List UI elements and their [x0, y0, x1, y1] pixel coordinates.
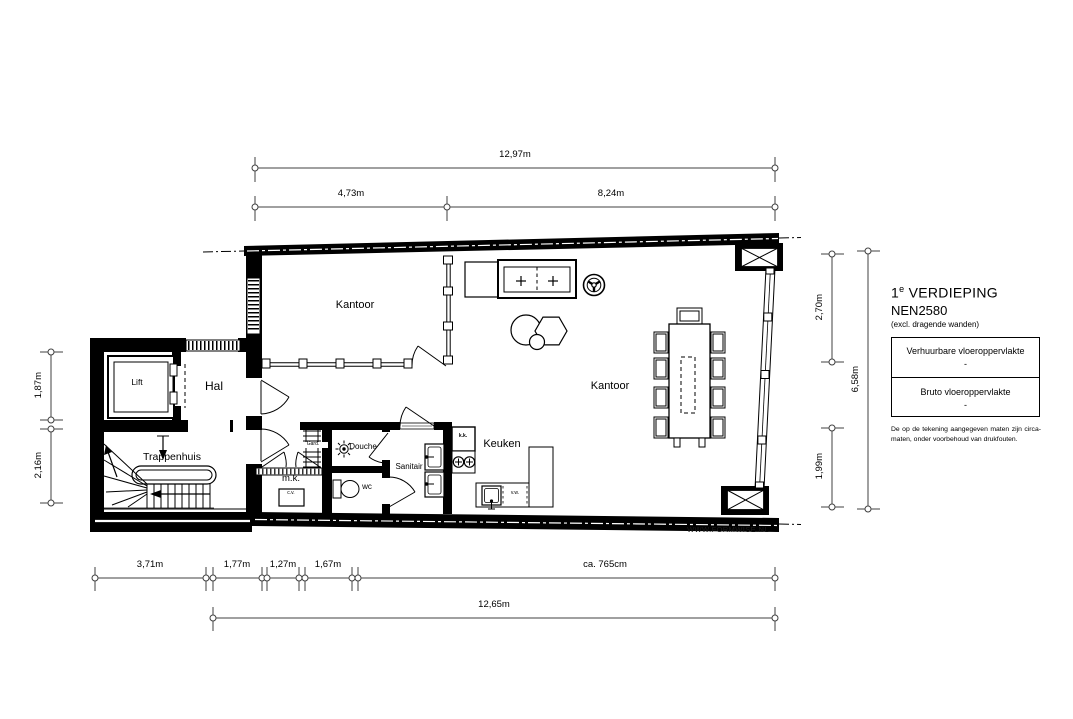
- dim-bottom-4: 1,67m: [298, 560, 358, 570]
- floor-suffix: e: [899, 284, 904, 294]
- dim-top-total: 12,97m: [485, 150, 545, 160]
- area-row-value: -: [964, 400, 967, 410]
- meeting-table-group: [654, 308, 725, 447]
- area-row-verhuurbaar: Verhuurbare vloeroppervlakte -: [892, 338, 1039, 378]
- column-bottom-right-icon: [727, 490, 764, 510]
- dim-left-lower: 2,16m: [34, 440, 44, 490]
- room-label-wc: wc: [352, 483, 382, 492]
- kitchen-tall-cabinet: [529, 447, 553, 507]
- roof-window-icon: [465, 260, 576, 298]
- dim-right-lower: 1,99m: [815, 441, 825, 491]
- room-label-lift: Lift: [117, 378, 157, 387]
- area-row-label: Bruto vloeroppervlakte: [920, 387, 1010, 397]
- dim-bottom-5: ca. 765cm: [565, 560, 645, 570]
- tables-group: [511, 315, 567, 350]
- room-label-kk: k.k.: [451, 434, 475, 440]
- dim-bottom-total: 12,65m: [464, 600, 524, 610]
- room-label-cv: c.v.: [279, 491, 303, 497]
- room-label-keuken: Keuken: [467, 438, 537, 450]
- stove-icon: [452, 451, 475, 473]
- room-label-vw: v.w.: [503, 491, 527, 497]
- dim-left-upper: 1,87m: [34, 360, 44, 410]
- garderobe-rack-icon: [303, 428, 321, 468]
- room-label-sanitair: Sanitair: [379, 463, 439, 472]
- area-table: Verhuurbare vloeroppervlakte - Bruto vlo…: [891, 337, 1040, 417]
- room-label-mk: m.k.: [271, 474, 311, 484]
- dim-bottom-1: 3,71m: [120, 560, 180, 570]
- floor-number: 1: [891, 285, 899, 301]
- stair-direction-arrows: [104, 436, 210, 498]
- dim-top-left: 4,73m: [321, 189, 381, 199]
- floor-label: VERDIEPING: [909, 285, 998, 301]
- column-top-right-icon: [741, 248, 778, 267]
- room-label-douche: Douche: [338, 443, 388, 452]
- glass-partition-horizontal: [262, 359, 412, 368]
- wheel-icon: [584, 275, 605, 296]
- area-row-value: -: [964, 359, 967, 369]
- standard-label: NEN2580: [891, 303, 947, 318]
- stairs: [104, 436, 216, 508]
- standard-note: (excl. dragende wanden): [891, 320, 979, 329]
- disclaimer-text: De op de tekening aangegeven maten zijn …: [891, 425, 1041, 445]
- furniture: [465, 260, 725, 447]
- area-row-label: Verhuurbare vloeroppervlakte: [906, 346, 1024, 356]
- page-title: 1e VERDIEPING: [891, 284, 998, 301]
- room-label-gard: Gard.: [298, 442, 328, 448]
- dim-top-right: 8,24m: [581, 189, 641, 199]
- floorplan-page: Kantoor Kantoor Hal Lift Trappenhuis Dou…: [0, 0, 1073, 719]
- room-label-kantoor-main: Kantoor: [570, 380, 650, 392]
- watermark-text: WWW.FORMWISE.NL: [668, 525, 788, 534]
- dim-right-total: 6,58m: [851, 354, 861, 404]
- room-label-hal: Hal: [184, 380, 244, 393]
- dim-right-upper: 2,70m: [815, 282, 825, 332]
- room-label-kantoor-front: Kantoor: [315, 299, 395, 311]
- room-label-trappenhuis: Trappenhuis: [127, 452, 217, 464]
- area-row-bruto: Bruto vloeroppervlakte -: [892, 378, 1039, 418]
- glass-partition-vertical: [444, 256, 453, 364]
- kitchen-sink-icon: [482, 486, 501, 509]
